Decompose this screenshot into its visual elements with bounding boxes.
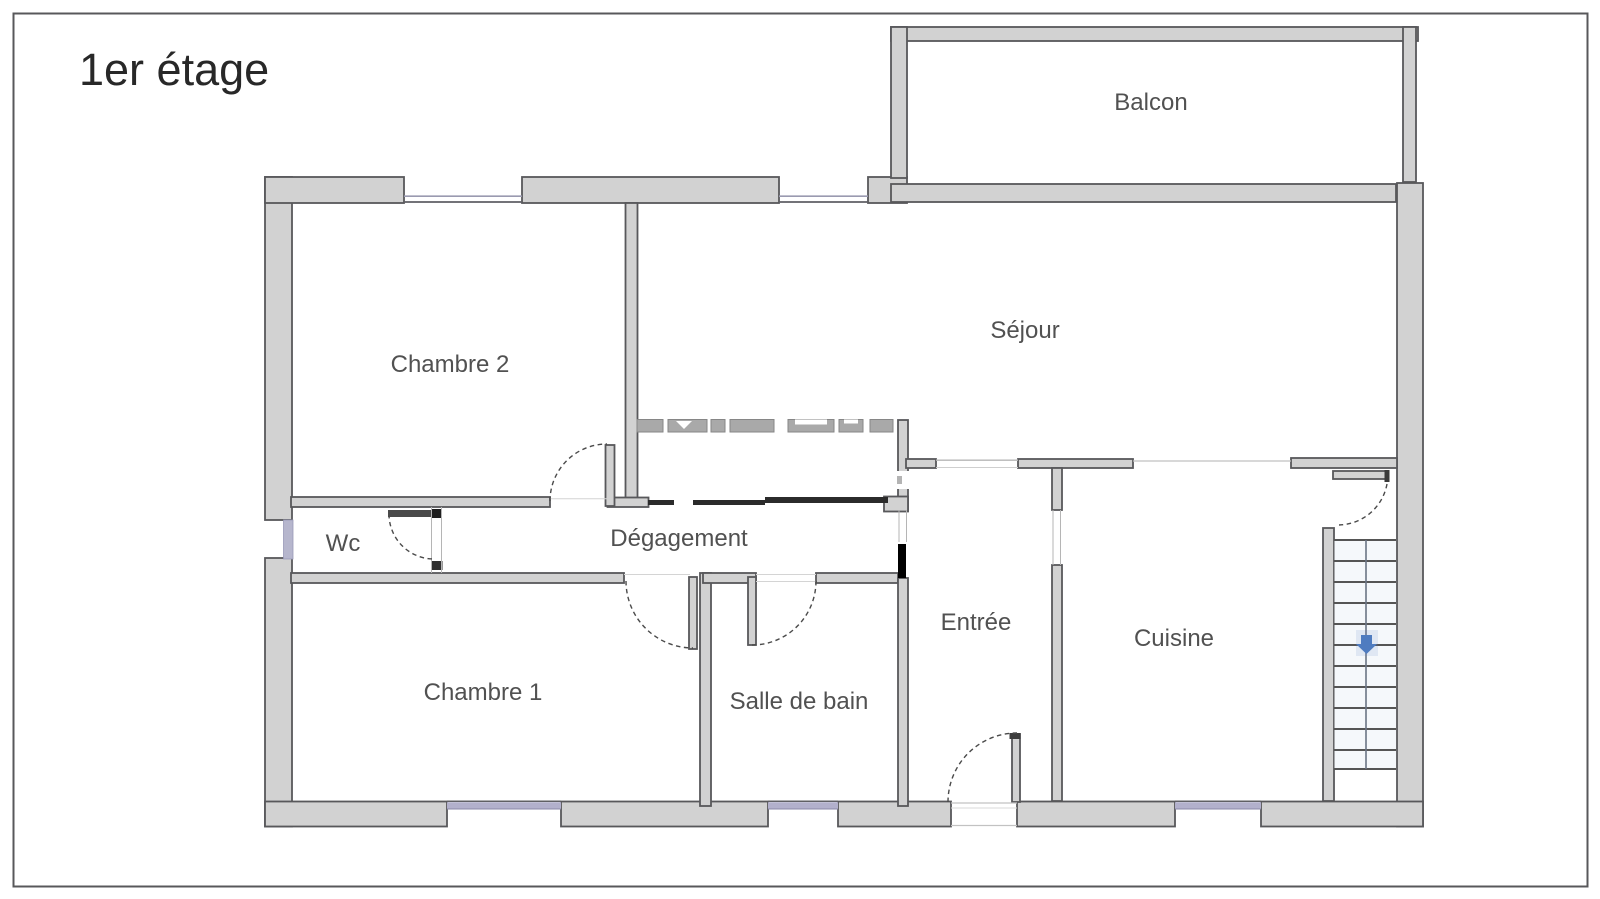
svg-text:Balcon: Balcon (1114, 89, 1187, 116)
svg-text:Séjour: Séjour (990, 317, 1059, 344)
svg-text:Chambre 1: Chambre 1 (424, 679, 543, 706)
svg-text:Wc: Wc (326, 530, 361, 557)
svg-text:1er étage: 1er étage (79, 44, 269, 95)
svg-text:Chambre 2: Chambre 2 (391, 351, 510, 378)
svg-text:Cuisine: Cuisine (1134, 625, 1214, 652)
svg-text:Salle de bain: Salle de bain (730, 688, 869, 715)
svg-text:Entrée: Entrée (941, 609, 1012, 636)
svg-text:Dégagement: Dégagement (610, 525, 748, 552)
